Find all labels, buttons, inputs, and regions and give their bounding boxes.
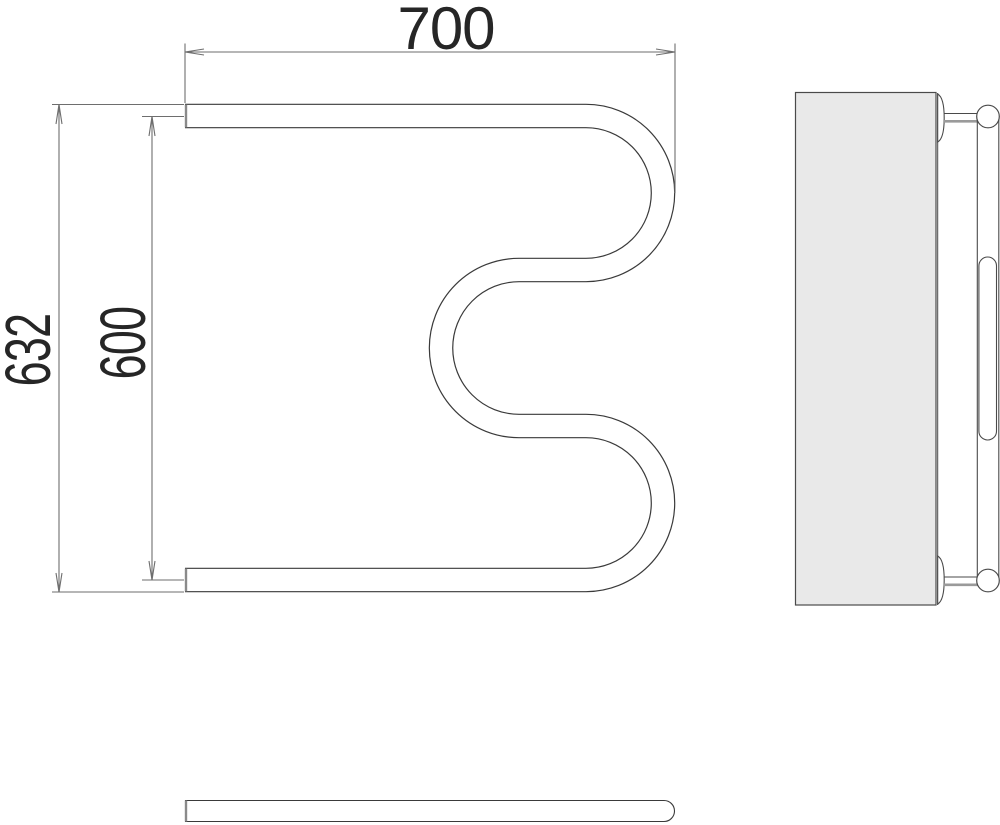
dimension-width-label: 700 (397, 0, 494, 59)
side-view (796, 93, 1000, 606)
drawing-canvas: 700 632 600 (0, 0, 1000, 825)
bottom-view (185, 801, 675, 822)
rail-ball-end-top (977, 105, 1000, 128)
dimension-overall-height-label: 632 (0, 314, 60, 387)
mount-flange-bottom (938, 556, 945, 604)
mount-flange-top (938, 94, 945, 142)
mount-stem-bottom (944, 577, 978, 585)
mount-stem-top (944, 114, 978, 122)
tube-body-fill (185, 116, 663, 580)
front-view (185, 105, 663, 592)
dimension-axis-height-label: 600 (91, 307, 155, 380)
bottom-tube-outline (185, 801, 675, 822)
rail-middle-loop-side (979, 257, 997, 440)
drawing-linework (0, 0, 1000, 825)
tube-outline (185, 116, 663, 580)
rail-ball-end-bottom (977, 569, 1000, 592)
wall-plate (796, 93, 937, 606)
